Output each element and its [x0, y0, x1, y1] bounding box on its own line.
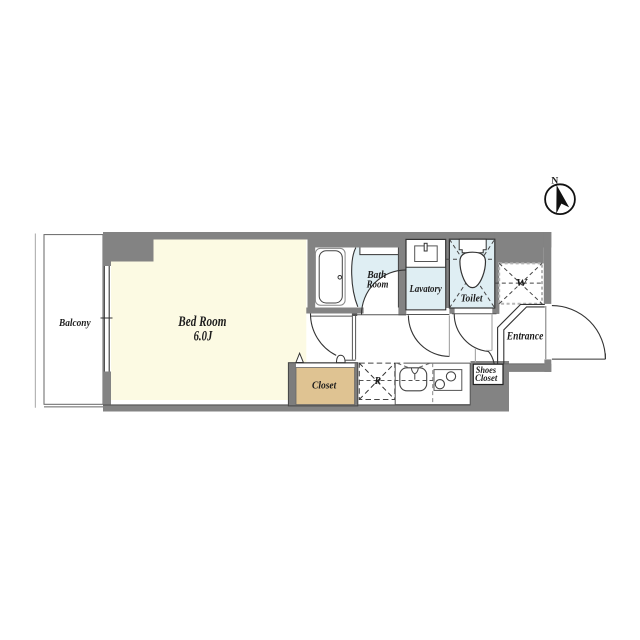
svg-text:Closet: Closet	[312, 379, 337, 391]
svg-text:W: W	[516, 278, 528, 289]
svg-text:Balcony: Balcony	[58, 318, 91, 329]
svg-text:N: N	[551, 176, 558, 186]
svg-text:6.0J: 6.0J	[194, 329, 213, 345]
svg-text:Lavatory: Lavatory	[409, 284, 442, 295]
svg-text:Toilet: Toilet	[461, 292, 484, 304]
svg-text:Entrance: Entrance	[506, 330, 543, 342]
svg-text:Bed Room: Bed Room	[178, 314, 227, 330]
svg-text:Room: Room	[366, 280, 389, 291]
svg-text:R: R	[374, 375, 381, 387]
svg-text:Closet: Closet	[475, 373, 498, 383]
